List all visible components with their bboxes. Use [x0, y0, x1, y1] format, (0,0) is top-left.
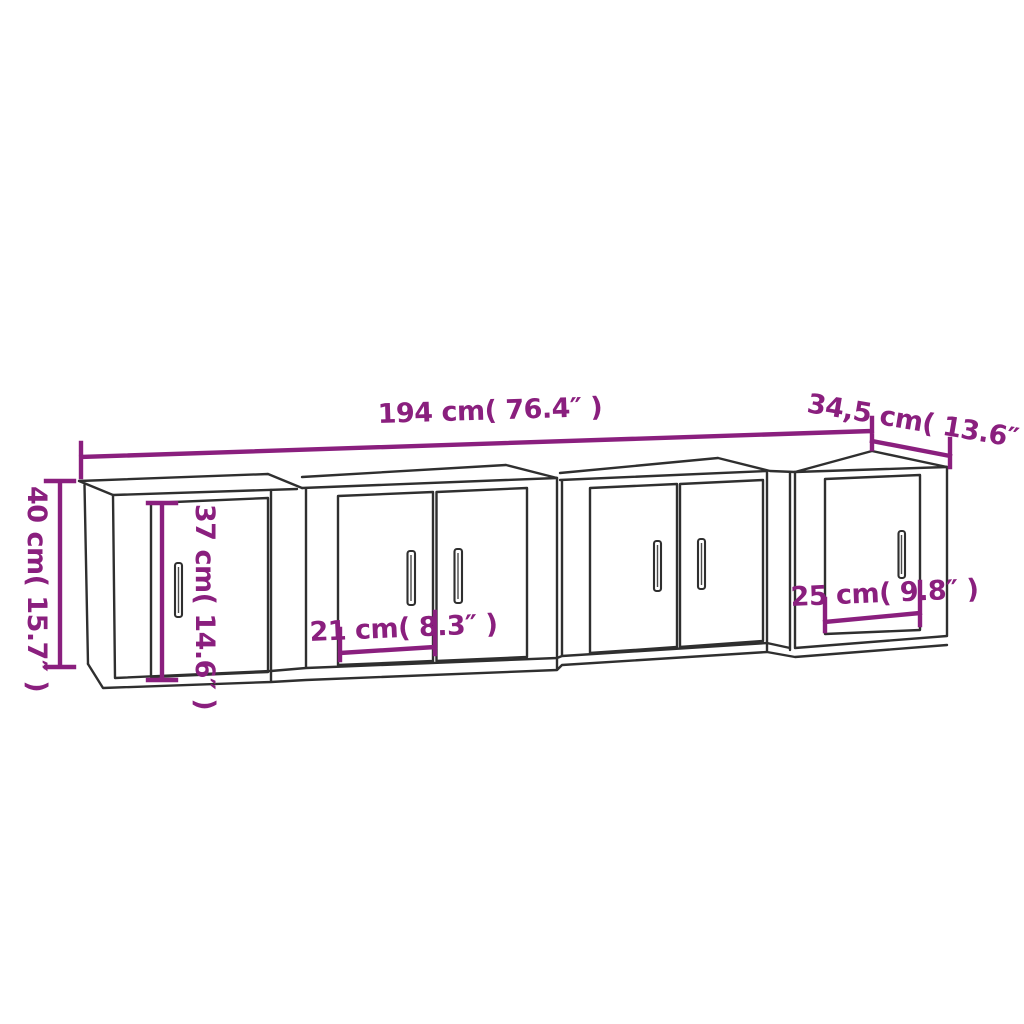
- diagram-canvas: 194 cm( 76.4″ ) 34,5 cm( 13.6″ ) 40 cm( …: [0, 0, 1024, 1024]
- dimensions: 194 cm( 76.4″ ) 34,5 cm( 13.6″ ) 40 cm( …: [21, 388, 1024, 710]
- cabinet-3-top: [560, 458, 795, 480]
- cabinet-3-door-left: [590, 484, 677, 653]
- dimension-total-width: 194 cm( 76.4″ ): [81, 392, 872, 477]
- dimension-right-door-width: 25 cm( 9.8″ ): [790, 574, 979, 631]
- cabinet-4-top: [795, 451, 947, 472]
- cabinet-3: [557, 458, 795, 658]
- dimension-height-label: 40 cm( 15.7″ ): [21, 486, 52, 692]
- cabinet-1-left-side: [85, 485, 89, 664]
- dimension-door-height: 37 cm( 14.6″ ): [148, 503, 220, 710]
- cabinet-1-top: [79, 474, 302, 495]
- cabinet-2-top: [302, 465, 557, 488]
- dimension-height: 40 cm( 15.7″ ): [21, 481, 74, 692]
- dimension-depth: 34,5 cm( 13.6″ ): [805, 388, 1024, 467]
- dimension-total-width-label: 194 cm( 76.4″ ): [377, 392, 602, 430]
- cabinet-3-door-right: [680, 480, 763, 647]
- dimension-diagram: 194 cm( 76.4″ ) 34,5 cm( 13.6″ ) 40 cm( …: [0, 0, 1024, 1024]
- dimension-right-door-width-label: 25 cm( 9.8″ ): [790, 574, 979, 613]
- dimension-door-height-label: 37 cm( 14.6″ ): [189, 504, 220, 710]
